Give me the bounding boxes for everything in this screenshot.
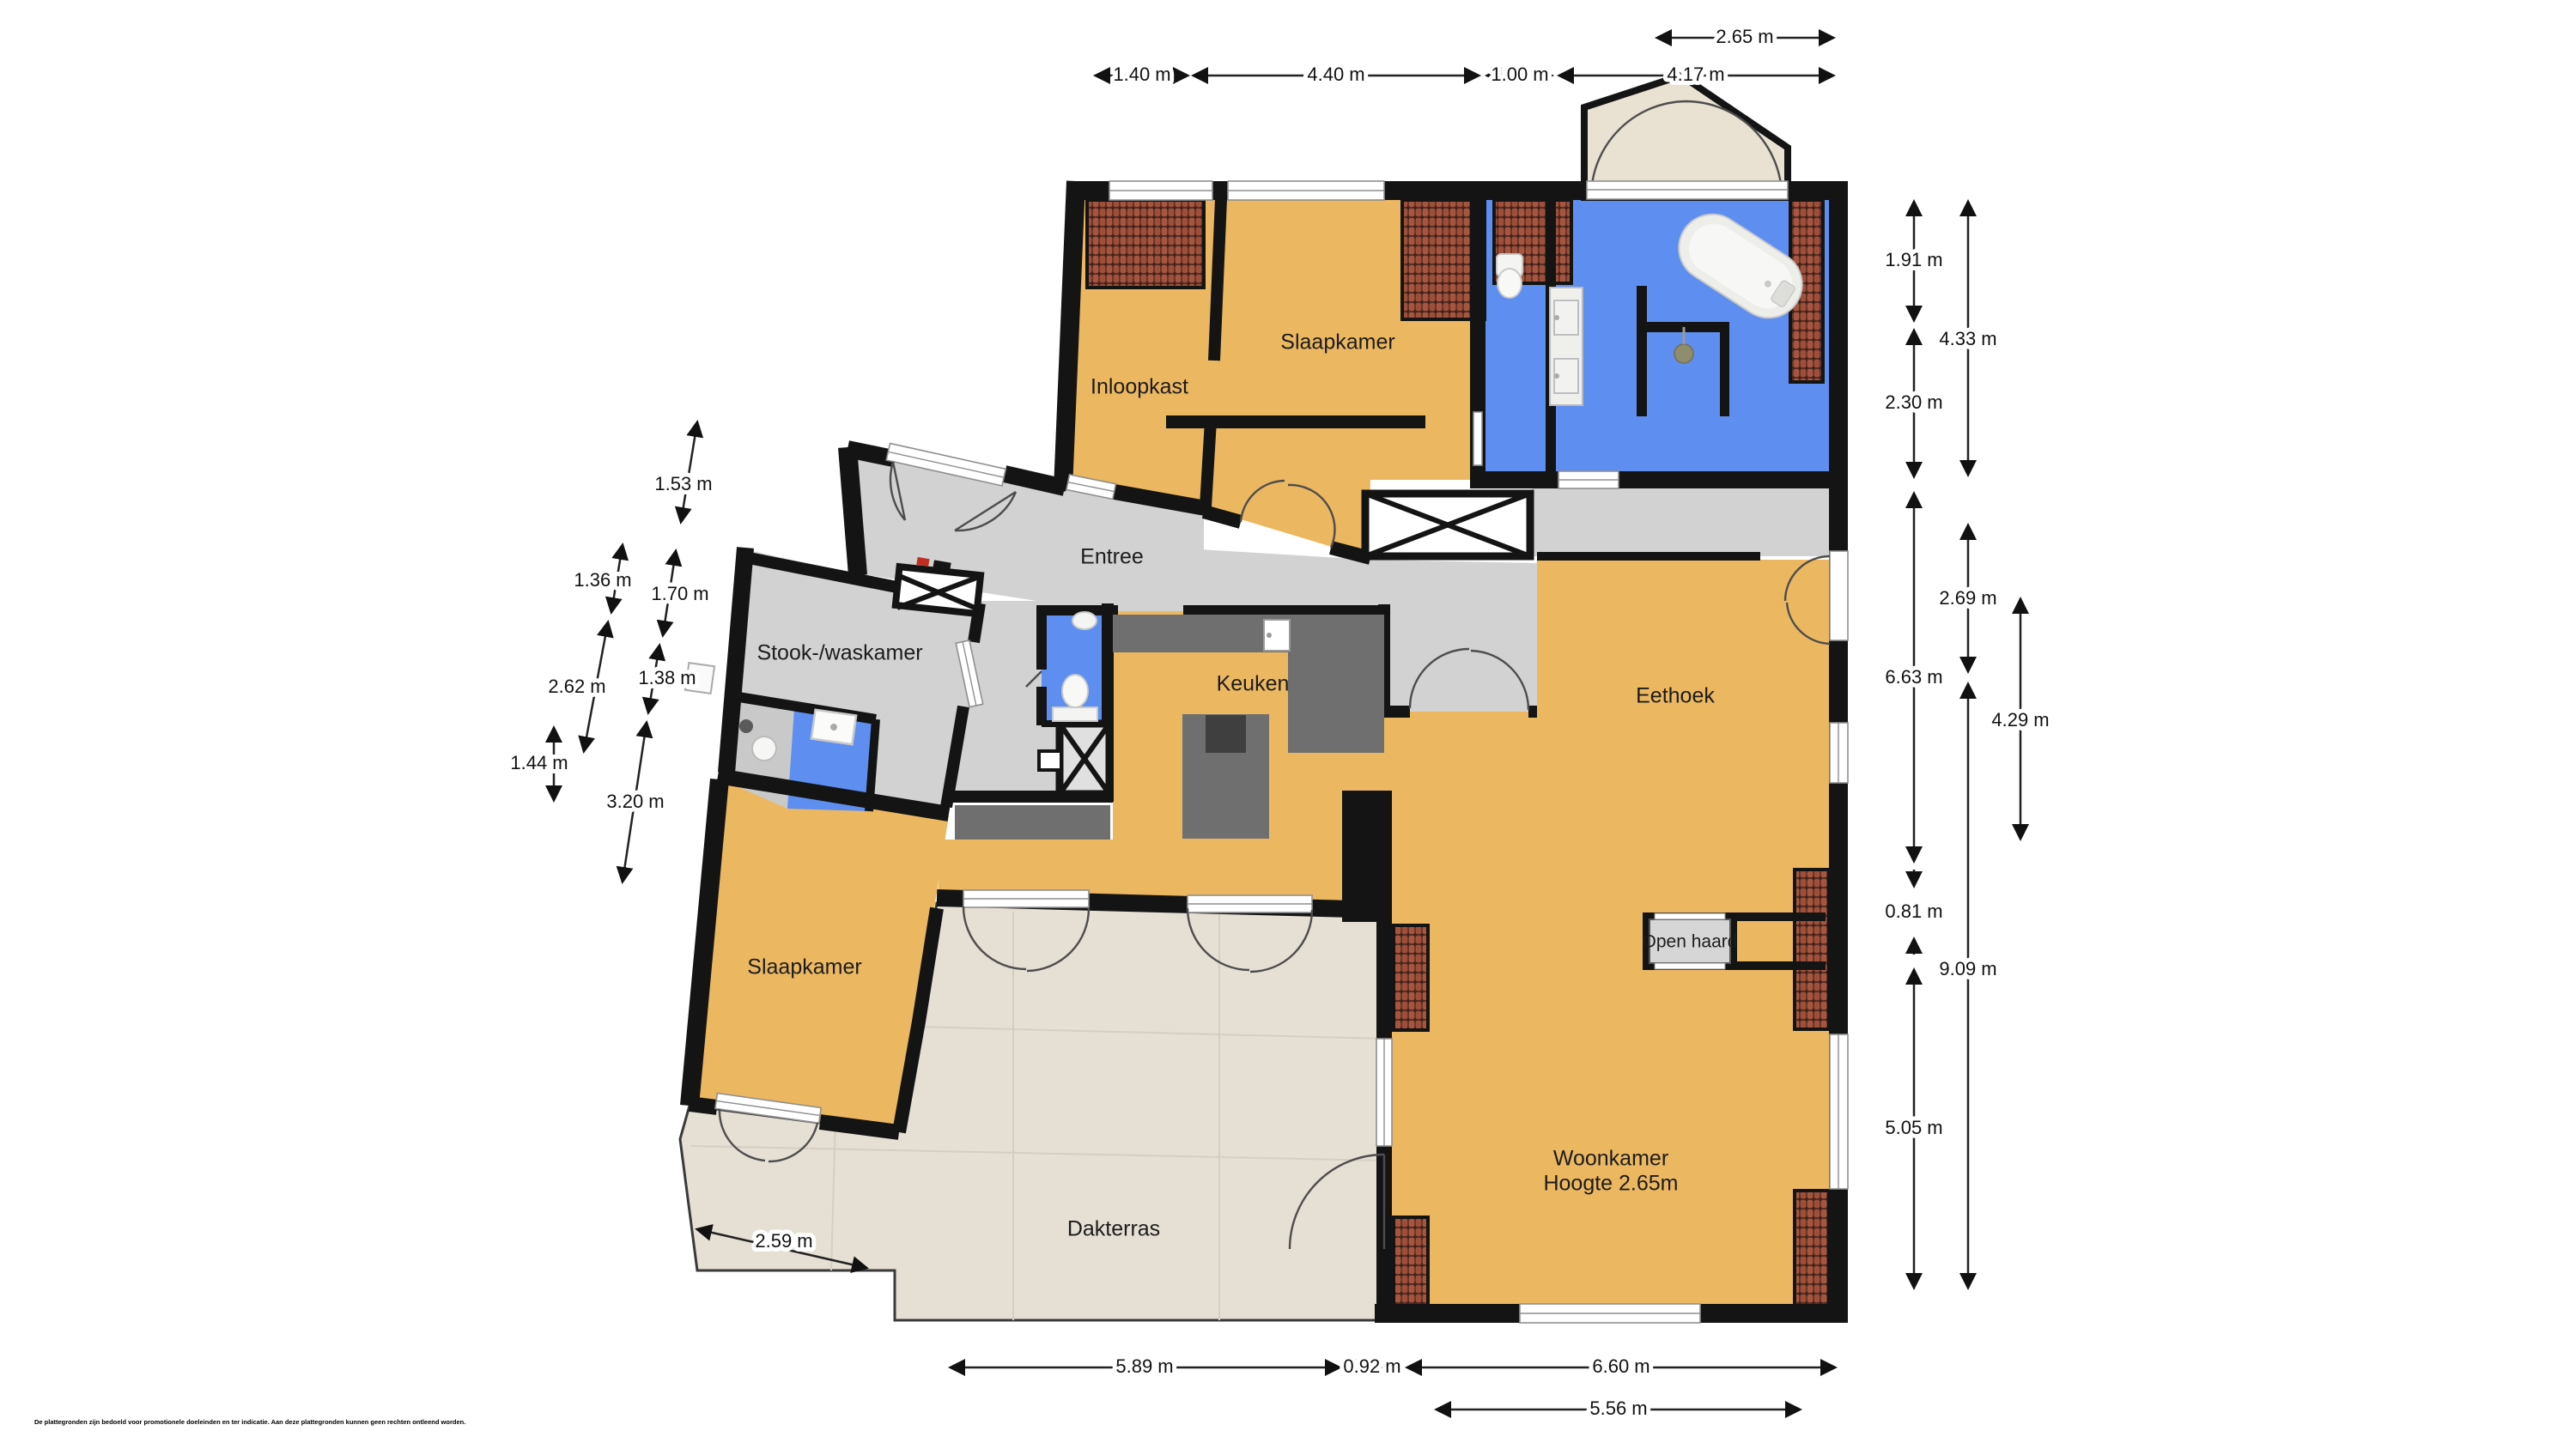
- laundry-basin: [752, 737, 776, 761]
- dim-terrace-2-59: 2.59 m: [755, 1230, 812, 1252]
- floorplan-drawing: Open haard Slaapkamer Inloopkast Entree …: [0, 0, 2576, 1449]
- vide-box: [1365, 494, 1530, 556]
- dim-top-1-00: 1.00 m: [1491, 64, 1548, 85]
- dim-right-1-91: 1.91 m: [1885, 249, 1942, 270]
- stook-waskamer-label: Stook-/waskamer: [756, 641, 922, 665]
- kitchen-counter-2: [955, 805, 1110, 840]
- woonkamer-label: Woonkamer: [1553, 1147, 1668, 1171]
- disclaimer-text: De plattegronden zijn bedoeld voor promo…: [34, 1418, 465, 1426]
- boiler-dot: [739, 719, 753, 733]
- skylight-box: [896, 567, 981, 614]
- dim-right-0-81: 0.81 m: [1885, 900, 1942, 922]
- dim-left-3-20: 3.20 m: [606, 791, 664, 812]
- kitchen-tall-cabinet: [1288, 615, 1384, 753]
- dim-right-4-29: 4.29 m: [1991, 709, 2049, 731]
- dim-left-1-36: 1.36 m: [574, 569, 631, 591]
- slaapkamer2-label: Slaapkamer: [747, 955, 861, 979]
- inloopkast-label: Inloopkast: [1091, 375, 1188, 399]
- dim-bottom-5-89: 5.89 m: [1115, 1355, 1173, 1377]
- dim-top-4-17: 4.17 m: [1667, 64, 1724, 85]
- keuken-label: Keuken: [1217, 672, 1290, 696]
- dim-right-6-63: 6.63 m: [1885, 666, 1942, 688]
- dim-top-4-40: 4.40 m: [1307, 64, 1364, 85]
- dim-top-1-40: 1.40 m: [1113, 64, 1170, 85]
- dim-right-2-30: 2.30 m: [1885, 391, 1942, 413]
- entree-label: Entree: [1080, 545, 1144, 569]
- dim-right-4-33: 4.33 m: [1939, 328, 1996, 349]
- dim-right-5-05: 5.05 m: [1885, 1117, 1942, 1138]
- dim-left-1-70: 1.70 m: [651, 583, 708, 604]
- eethoek-label: Eethoek: [1636, 684, 1715, 708]
- toilet-top: [1497, 254, 1522, 298]
- dim-bottom-0-92: 0.92 m: [1343, 1355, 1400, 1377]
- dim-left-2-62: 2.62 m: [548, 676, 605, 697]
- floorplan-page: Open haard Slaapkamer Inloopkast Entree …: [0, 0, 2576, 1449]
- dim-bottom-6-60: 6.60 m: [1592, 1355, 1649, 1377]
- dim-bottom-5-56: 5.56 m: [1589, 1397, 1647, 1419]
- wc-basin: [1072, 612, 1097, 629]
- dim-right-9-09: 9.09 m: [1939, 958, 1996, 979]
- dim-left-1-53: 1.53 m: [654, 473, 712, 494]
- kitchen-stove: [1206, 715, 1246, 753]
- dim-left-1-38: 1.38 m: [638, 667, 696, 688]
- dim-left-1-44: 1.44 m: [510, 752, 568, 773]
- shower-head: [1674, 344, 1693, 363]
- woonkamer-hoogte-label: Hoogte 2.65m: [1543, 1172, 1678, 1196]
- bay-window-floor: [1584, 76, 1788, 197]
- dim-top-2-65: 2.65 m: [1716, 26, 1773, 47]
- dakterras-label: Dakterras: [1067, 1217, 1160, 1241]
- dim-right-2-69: 2.69 m: [1939, 587, 1996, 609]
- open-haard-label: Open haard: [1643, 932, 1738, 952]
- wardrobe-bar: [1166, 415, 1425, 428]
- slaapkamer1-label: Slaapkamer: [1280, 330, 1394, 355]
